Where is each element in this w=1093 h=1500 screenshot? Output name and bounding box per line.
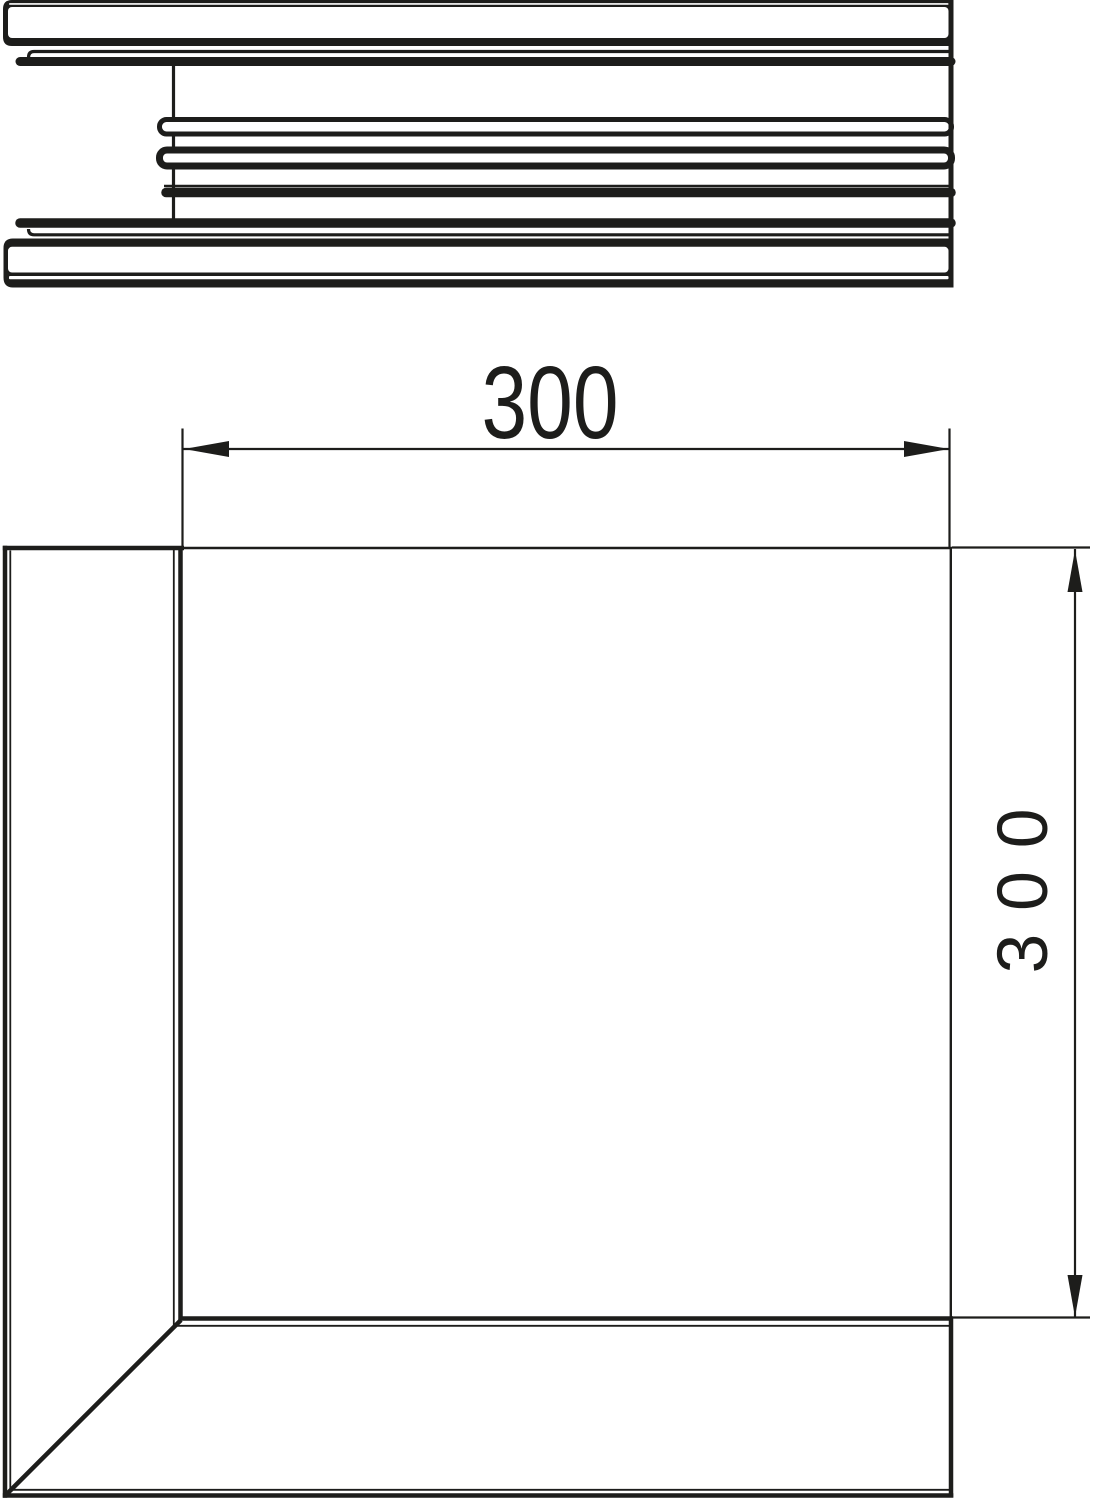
profile-section-view	[3, 0, 954, 288]
profile-lower-bar-cavity	[8, 247, 949, 273]
width-dimension-label: 300	[482, 345, 619, 460]
drawing-svg: 300 300	[0, 0, 1093, 1500]
profile-right-edge	[949, 0, 954, 288]
width-arrow-left-icon	[184, 441, 229, 457]
profile-upper-lip	[29, 52, 952, 58]
plan-view	[3, 546, 954, 1498]
width-dimension: 300	[183, 345, 950, 548]
width-arrow-right-icon	[904, 441, 949, 457]
profile-lower-bar-slot	[9, 276, 949, 279]
profile-upper-bar-cavity	[8, 7, 949, 38]
height-dimension: 300	[952, 548, 1090, 1318]
plan-mitre-diagonal	[5, 1320, 181, 1496]
profile-lower-lip	[29, 229, 952, 235]
height-arrow-up-icon	[1068, 550, 1083, 592]
technical-drawing-canvas: 300 300	[0, 0, 1093, 1500]
profile-rail-2	[160, 150, 952, 166]
profile-upper-bar-slot	[9, 3, 949, 5]
profile-rail-1	[160, 120, 952, 135]
height-arrow-down-icon	[1068, 1275, 1083, 1317]
height-dimension-label: 300	[983, 809, 1063, 974]
